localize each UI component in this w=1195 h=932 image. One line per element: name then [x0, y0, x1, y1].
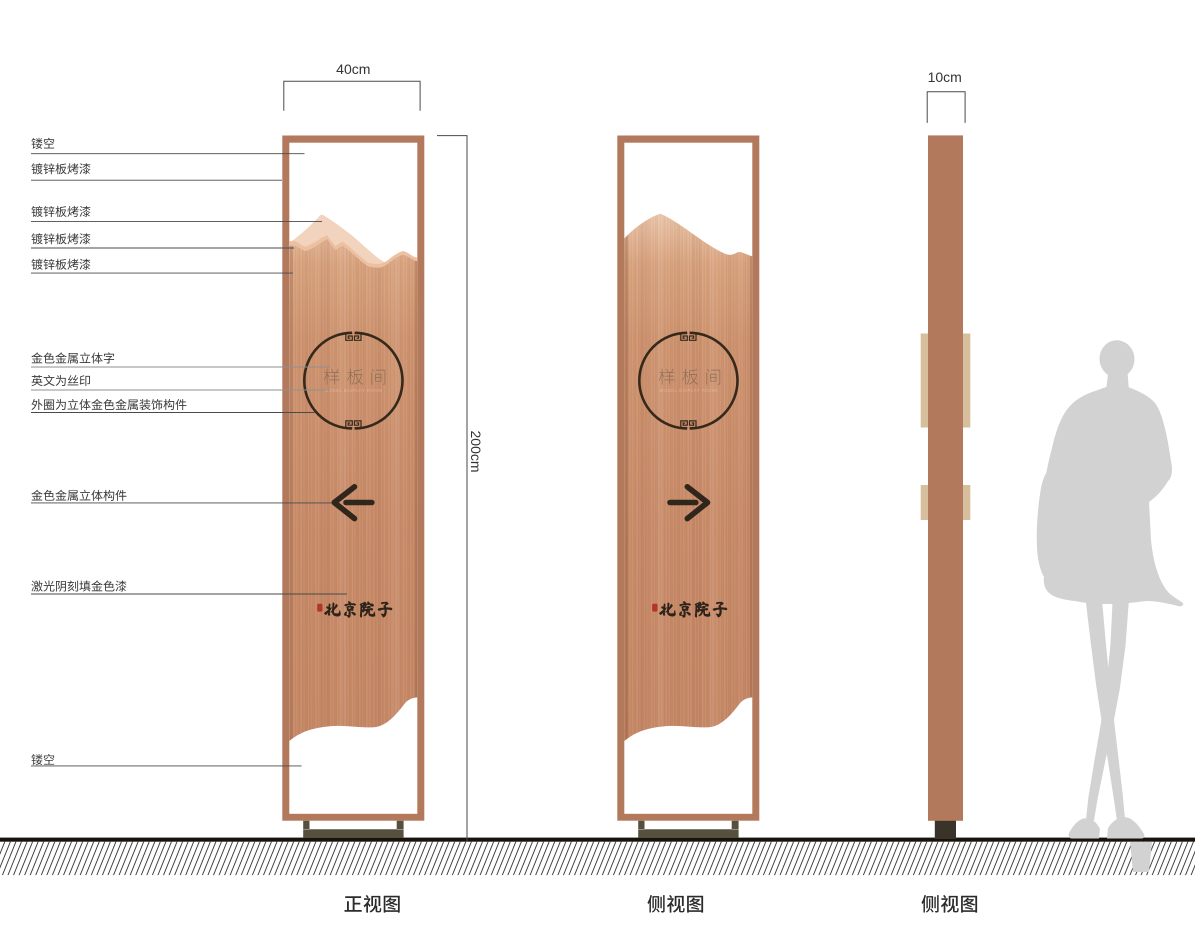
- svg-text:MODEL DISPLAY ROOM: MODEL DISPLAY ROOM: [660, 388, 718, 393]
- svg-text:40cm: 40cm: [336, 61, 370, 77]
- svg-text:MODEL DISPLAY ROOM: MODEL DISPLAY ROOM: [325, 388, 383, 393]
- svg-text:200cm: 200cm: [468, 431, 484, 473]
- svg-text:10cm: 10cm: [928, 69, 962, 85]
